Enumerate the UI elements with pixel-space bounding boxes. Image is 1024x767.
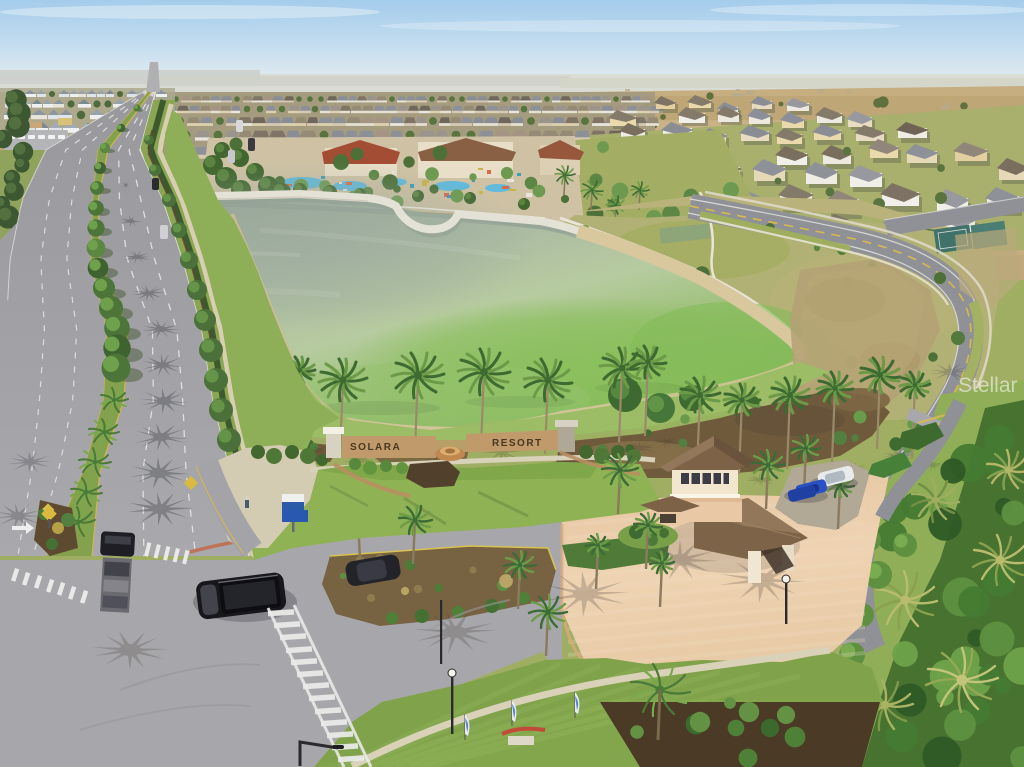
svg-text:RESORT: RESORT	[492, 438, 543, 449]
svg-text:Stellar M: Stellar M	[958, 374, 1024, 397]
svg-text:SOLARA: SOLARA	[350, 442, 401, 453]
